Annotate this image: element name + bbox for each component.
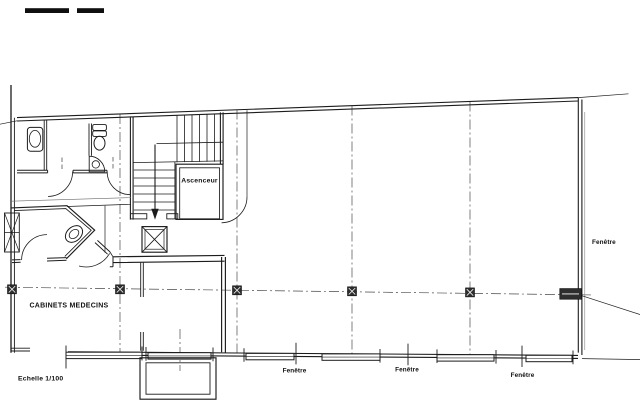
column-marker [233, 286, 242, 295]
wall-stub-diagonal [95, 240, 110, 254]
stair-arrow-head [151, 209, 158, 220]
window-label-right: Fenêtre [592, 239, 616, 246]
elevator-inner-outline [180, 168, 220, 219]
interior-walls [11, 198, 225, 353]
shaft-cross [142, 227, 167, 253]
wall-jog [110, 257, 113, 267]
floor-plan-drawing: Ascenceur [0, 0, 640, 408]
window-label-bottom-1: Fenêtre [283, 368, 307, 375]
door-swing-arc [107, 172, 130, 195]
stair-landing-line [157, 142, 224, 143]
stair-risers-upper [177, 114, 215, 162]
door-swing-arc [222, 196, 247, 222]
partition-wall [222, 257, 226, 353]
room-wall-inner [14, 209, 91, 257]
offices-label: CABINETS MEDECINS [30, 302, 109, 309]
toilet-symbol [93, 125, 107, 131]
wall-extension-line [578, 94, 629, 98]
stair-edge-line [133, 161, 223, 163]
toilet-bowl-inner [67, 227, 80, 240]
toilet-rooms [17, 120, 130, 196]
partition-wall [89, 124, 92, 156]
column-marker [116, 285, 125, 294]
annex-inner-outline [146, 363, 210, 394]
wall-line [17, 101, 578, 121]
column-marker [466, 288, 475, 297]
column-marker [348, 287, 357, 296]
scale-label: Echelle 1/100 [18, 375, 63, 382]
exterior-annex-outline [140, 358, 216, 399]
partition-wall [17, 170, 48, 173]
door-swing-arc [79, 253, 110, 267]
leader-line [578, 295, 640, 315]
beam-line [11, 198, 131, 202]
wall-extension-line [582, 359, 640, 360]
wall-line [67, 204, 131, 206]
column-markers [8, 285, 582, 299]
stair-risers-lower [134, 170, 175, 210]
outer-walls [0, 85, 640, 360]
column-marker [8, 285, 17, 294]
wall-duct-hatch [5, 213, 20, 252]
door-swing-arc [22, 235, 47, 260]
column-grid-axes [5, 102, 594, 372]
room-wall [12, 258, 67, 263]
window-label-bottom-3: Fenêtre [511, 372, 535, 379]
washbasin-bowl [29, 130, 40, 147]
window-ticks [66, 343, 573, 369]
scan-dash [77, 8, 104, 13]
elevator-label: Ascenceur [181, 177, 218, 184]
floor-plan-sheet: Ascenceur [0, 0, 640, 408]
annex-outline [140, 358, 216, 399]
partition-wall [44, 120, 47, 171]
wall-line [220, 112, 223, 164]
main-wall [113, 255, 225, 262]
bottom-windows [66, 343, 573, 369]
corner-basin-symbol [89, 156, 105, 172]
elevator-outline [176, 164, 223, 219]
toilet-tank [93, 131, 107, 137]
elevator-shaft [176, 110, 247, 223]
duct-shaft-symbol [142, 227, 167, 253]
corner-basin-bowl [92, 161, 99, 168]
wall-stub [141, 263, 144, 297]
wall-connector [110, 252, 113, 257]
door-swing-arc [48, 172, 73, 197]
scan-dash [25, 8, 69, 13]
scan-artifact-marks [25, 8, 104, 13]
column-marker-wall [560, 289, 582, 300]
grid-axis-horizontal [5, 287, 594, 295]
staircase [130, 114, 223, 220]
toilet-bowl [94, 136, 105, 150]
window-label-bottom-2: Fenêtre [395, 367, 419, 374]
wall-line [17, 98, 578, 118]
duct-hatch-lines [5, 213, 20, 252]
